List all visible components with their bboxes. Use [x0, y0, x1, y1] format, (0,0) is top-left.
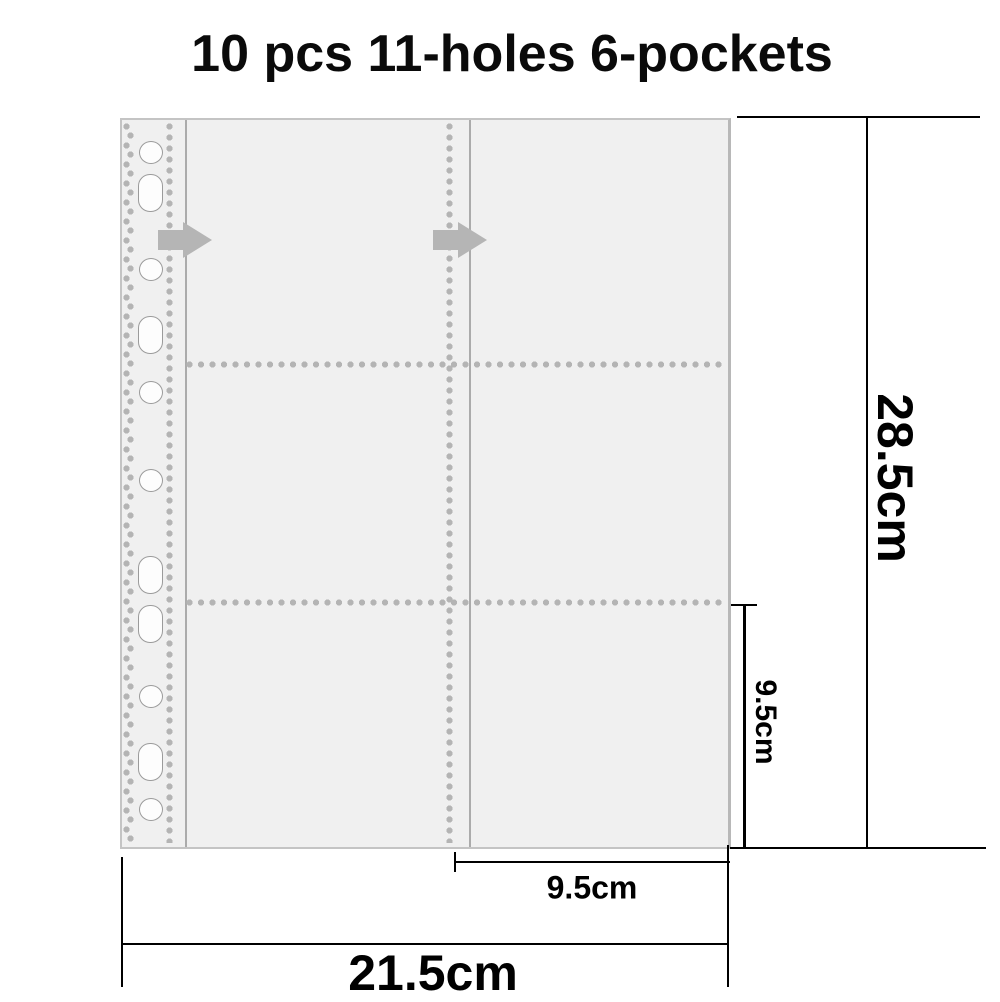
binder-hole	[139, 685, 163, 708]
binder-hole	[138, 743, 163, 781]
sheet-width-label: 21.5cm	[348, 944, 518, 1002]
height-dim-top-tick	[737, 116, 980, 118]
binder-hole	[139, 798, 163, 821]
shared-right-tick	[727, 845, 729, 987]
binder-hole	[138, 556, 163, 594]
binder-hole	[139, 381, 163, 404]
binder-hole	[138, 605, 163, 643]
sheet-height-label: 28.5cm	[866, 393, 924, 563]
pocket-height-label: 9.5cm	[748, 679, 782, 764]
arrow-right-icon	[433, 222, 487, 258]
pocket-sheet	[120, 118, 731, 849]
product-title: 10 pcs 11-holes 6-pockets	[12, 24, 1000, 84]
binder-hole	[138, 174, 163, 212]
pocket-width-dim-line	[454, 861, 730, 863]
stitch-line-left-edge	[127, 123, 134, 843]
stitch-line-row-divider	[186, 361, 726, 368]
binder-hole	[139, 141, 163, 164]
binder-hole	[139, 258, 163, 281]
height-dim-bottom-tick	[730, 847, 986, 849]
width-dim-left-tick	[121, 857, 123, 987]
arrow-right-icon	[158, 222, 212, 258]
binder-hole	[138, 316, 163, 354]
pocket-height-dim-line	[743, 604, 746, 849]
stitch-line-row-divider	[186, 599, 726, 606]
pocket-width-label: 9.5cm	[547, 870, 638, 907]
binder-hole	[139, 469, 163, 492]
